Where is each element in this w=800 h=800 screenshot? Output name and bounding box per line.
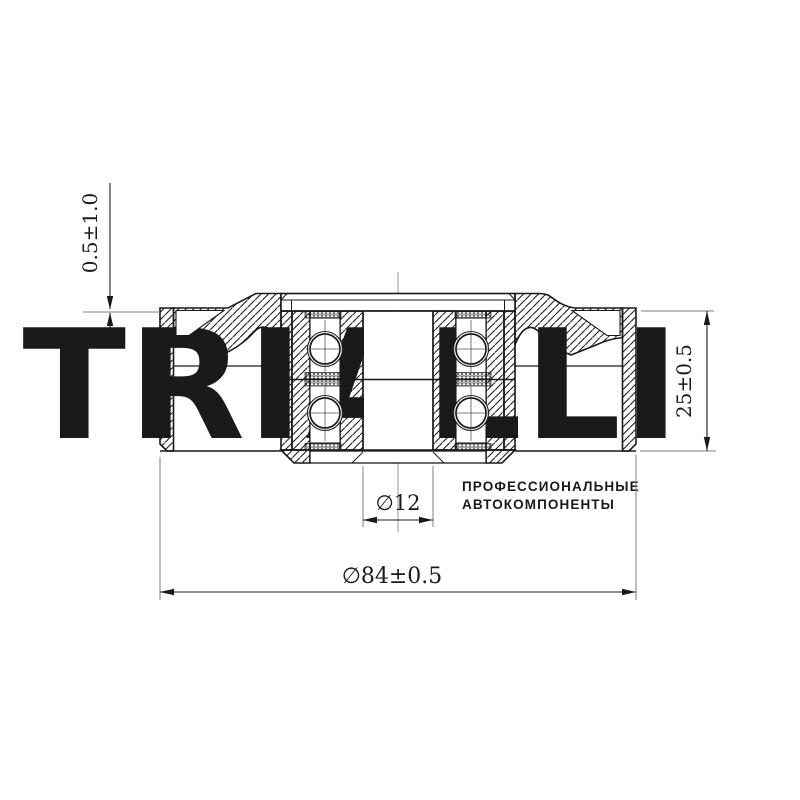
dimension-width-label: 25±0.5: [672, 344, 696, 418]
arrowhead-right: [622, 589, 636, 595]
seal-strip: [455, 373, 491, 380]
watermark-tagline-line1: ПРОФЕССИОНАЛЬНЫЕ: [462, 479, 640, 494]
seal-strip: [305, 312, 341, 319]
pulley-section-drawing: TRIALLI ПРОФЕССИОНАЛЬНЫЕ АВТОКОМПОНЕНТЫ: [0, 0, 800, 800]
dimension-face-offset-label: 0.5±1.0: [78, 193, 102, 273]
seal-strip: [305, 373, 341, 380]
hub-bottom-band: [310, 451, 486, 463]
seal-strip: [305, 380, 341, 387]
dimension-bore-label: ∅12: [375, 491, 420, 515]
watermark-tagline-line2: АВТОКОМПОНЕНТЫ: [462, 497, 615, 512]
left-rim-section: [160, 308, 174, 451]
arrowhead-left: [363, 517, 377, 523]
seal-strip: [455, 312, 491, 319]
bearing-inner-race-right: [433, 311, 456, 450]
hub-top-band: [281, 294, 515, 312]
right-rim-section: [623, 308, 637, 451]
dimension-outer-diameter-label: ∅84±0.5: [342, 564, 443, 589]
arrowhead-left: [160, 589, 174, 595]
bearing-inner-race-left: [340, 311, 363, 450]
hub-sleeve-left-section: [281, 311, 292, 450]
technical-drawing-page: TRIALLI ПРОФЕССИОНАЛЬНЫЕ АВТОКОМПОНЕНТЫ: [0, 0, 800, 800]
arrowhead-up: [704, 311, 710, 325]
seal-strip: [455, 444, 491, 451]
arrowhead-right: [419, 517, 433, 523]
hub-sleeve-right-section: [504, 311, 515, 450]
arrowhead-down: [704, 437, 710, 451]
seal-strip: [455, 380, 491, 387]
bore: [363, 311, 433, 463]
seal-strip: [305, 444, 341, 451]
